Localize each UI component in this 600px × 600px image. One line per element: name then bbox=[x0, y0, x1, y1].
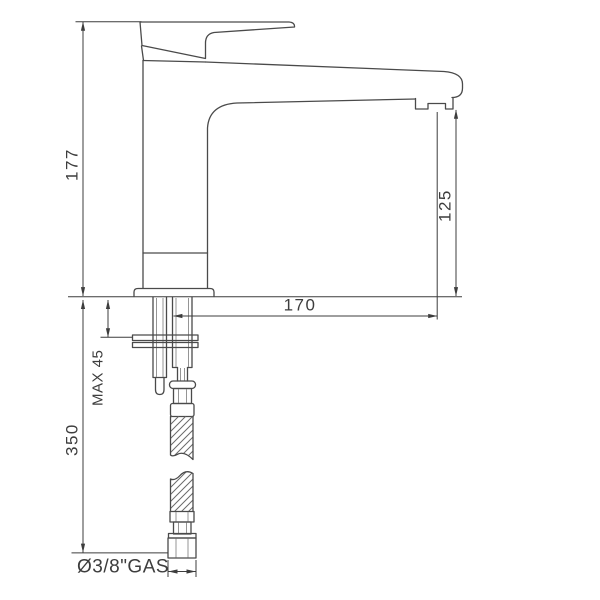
under-counter-assembly bbox=[133, 297, 199, 558]
arrowhead-right bbox=[428, 314, 437, 318]
arrowhead-left bbox=[173, 314, 182, 318]
dim-label-177: 177 bbox=[63, 148, 82, 181]
hose-hatching bbox=[171, 472, 194, 512]
arrowhead-down bbox=[81, 544, 85, 553]
dim-label-gas: Ø3/8"GAS bbox=[77, 557, 169, 578]
spout-top-edge bbox=[206, 62, 463, 98]
faucet bbox=[134, 22, 463, 297]
hex-nut bbox=[168, 538, 196, 558]
faucet-body bbox=[134, 61, 463, 297]
technical-drawing-canvas: 177 125 170 MAX 45 350 Ø3/8"GAS bbox=[0, 0, 600, 600]
faucet-dimension-diagram: 177 125 170 MAX 45 350 Ø3/8"GAS bbox=[0, 0, 600, 600]
pipe-neck bbox=[178, 368, 188, 382]
dim-label-350: 350 bbox=[63, 423, 82, 456]
hose-hex-coupler bbox=[174, 389, 192, 404]
o-ring-collar bbox=[170, 381, 196, 389]
arrowhead-up bbox=[106, 300, 110, 309]
arrowhead-down bbox=[106, 328, 110, 337]
mounting-stud bbox=[153, 297, 167, 395]
arrowhead-left bbox=[168, 569, 177, 573]
dim-label-max45: MAX 45 bbox=[90, 350, 107, 406]
base-flange bbox=[134, 289, 214, 297]
hose-ferrule bbox=[171, 404, 195, 417]
faucet-handle bbox=[140, 22, 295, 59]
arrowhead-up bbox=[81, 22, 85, 31]
handle-base-edge bbox=[142, 46, 144, 61]
arrowhead-up bbox=[454, 110, 458, 119]
hose-small-hex bbox=[174, 522, 192, 534]
dim-reach-170: 170 bbox=[173, 112, 437, 320]
arrowhead-right bbox=[187, 569, 196, 573]
dim-spout-height-125: 125 bbox=[436, 110, 459, 297]
dim-label-125: 125 bbox=[436, 189, 455, 222]
arrowhead-down bbox=[81, 287, 85, 296]
stud-tip bbox=[156, 378, 165, 395]
dim-label-170: 170 bbox=[284, 296, 317, 315]
extension-lines bbox=[168, 560, 196, 577]
arrowhead-up bbox=[81, 300, 85, 309]
dim-height-177: 177 bbox=[63, 22, 142, 297]
hose-collar bbox=[170, 512, 194, 523]
hose-end-fitting bbox=[168, 512, 196, 559]
cartridge-cap-line bbox=[143, 61, 206, 63]
aerator bbox=[416, 98, 454, 109]
supply-pipe bbox=[170, 297, 196, 417]
arrowhead-down bbox=[454, 287, 458, 296]
dim-connection-size: Ø3/8"GAS bbox=[77, 557, 196, 578]
spout-underside bbox=[208, 99, 416, 288]
flex-hose-lower bbox=[171, 472, 194, 512]
flex-hose-upper bbox=[171, 417, 194, 460]
dim-max-thickness-45: MAX 45 bbox=[90, 300, 133, 406]
